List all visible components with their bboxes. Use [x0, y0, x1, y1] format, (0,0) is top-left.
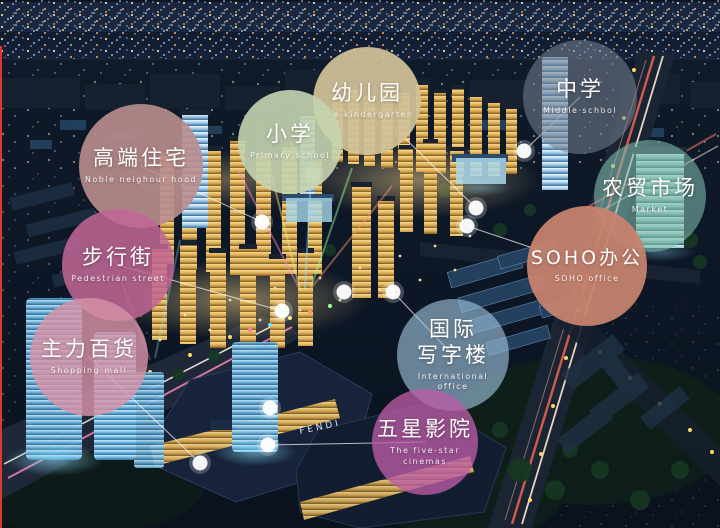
callout-title-zh: 高端住宅	[93, 146, 189, 171]
callout-layer: 高端住宅 Noble neighour hood 幼儿园 The kinderg…	[0, 0, 720, 528]
callout-subtitle-en: Shopping mall	[51, 366, 128, 376]
callout-subtitle-en: The five-star cinemas	[372, 446, 478, 467]
callout-middle-school: 中学 Middle school	[523, 40, 637, 154]
callout-title-zh: 国际 写字楼	[417, 317, 489, 367]
callout-title-zh: 步行街	[82, 245, 154, 270]
callout-subtitle-en: Middle school	[543, 106, 617, 116]
callout-subtitle-en: Market	[632, 205, 669, 215]
callout-title-zh: 主力百货	[41, 337, 137, 362]
callout-title-zh: 农贸市场	[602, 176, 698, 201]
callout-title-zh: 幼儿园	[331, 81, 403, 106]
callout-title-zh: SOHO办公	[531, 247, 643, 270]
callout-title-zh: 中学	[556, 77, 604, 102]
callout-subtitle-en: Noble neighour hood	[85, 175, 197, 185]
callout-subtitle-en: Pedestrian street	[71, 274, 165, 284]
callout-title-zh: 五星影院	[377, 417, 473, 442]
callout-subtitle-en: Primary school	[250, 151, 330, 161]
callout-primary-school: 小学 Primary school	[238, 90, 342, 194]
callout-title-zh: 小学	[266, 122, 314, 147]
aerial-masterplan-render: FENDI	[0, 0, 720, 528]
left-edge-red-line	[0, 46, 2, 528]
callout-five-star-cinema: 五星影院 The five-star cinemas	[372, 389, 478, 495]
callout-noble-neighbourhood: 高端住宅 Noble neighour hood	[79, 104, 203, 228]
callout-shopping-mall: 主力百货 Shopping mall	[30, 298, 148, 416]
callout-subtitle-en: SOHO office	[555, 274, 620, 284]
callout-soho-office: SOHO办公 SOHO office	[527, 206, 647, 326]
